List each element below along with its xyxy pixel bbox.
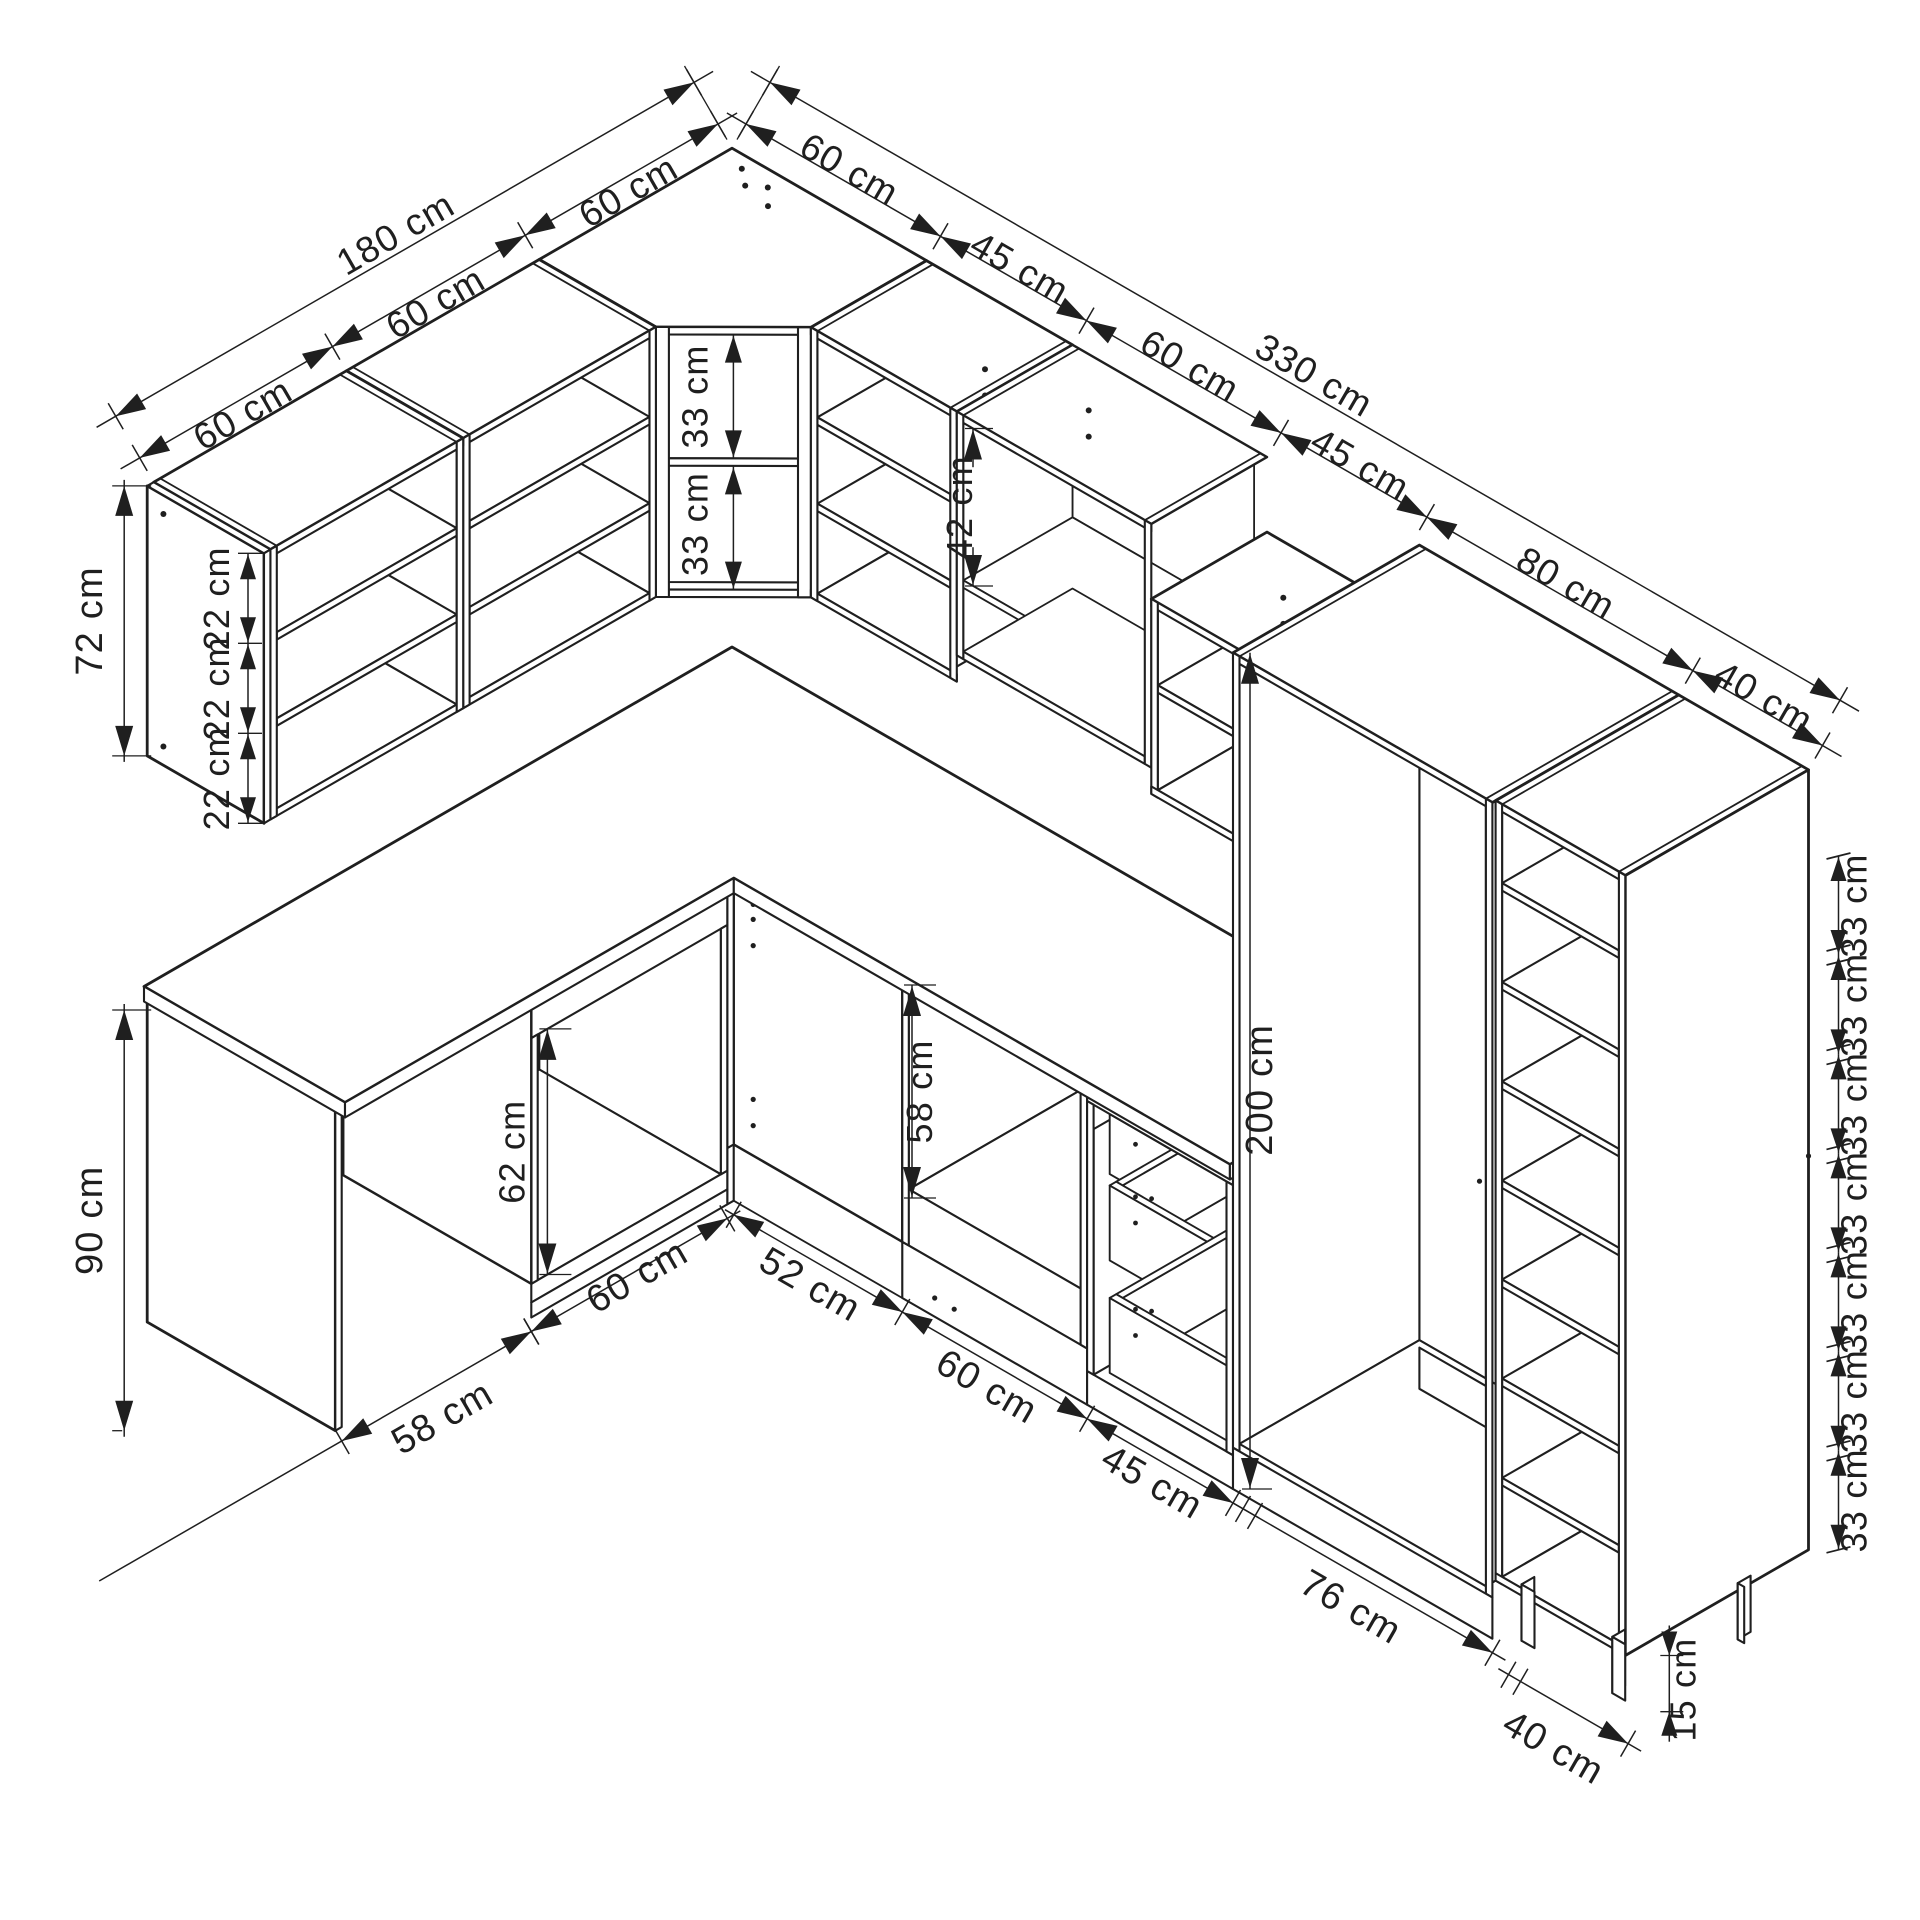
- svg-text:33 cm: 33 cm: [1834, 1052, 1875, 1156]
- svg-text:90 cm: 90 cm: [69, 1166, 111, 1275]
- svg-text:58 cm: 58 cm: [899, 1039, 940, 1143]
- svg-text:33 cm: 33 cm: [1834, 1250, 1875, 1354]
- svg-text:33 cm: 33 cm: [1834, 853, 1875, 957]
- svg-text:22 cm: 22 cm: [196, 636, 237, 740]
- svg-text:33 cm: 33 cm: [1834, 1349, 1875, 1453]
- svg-text:62 cm: 62 cm: [491, 1100, 532, 1204]
- svg-text:33 cm: 33 cm: [1834, 1151, 1875, 1255]
- svg-text:33 cm: 33 cm: [1834, 1448, 1875, 1552]
- svg-text:33 cm: 33 cm: [674, 344, 715, 448]
- svg-text:22 cm: 22 cm: [196, 726, 237, 830]
- svg-text:33 cm: 33 cm: [674, 472, 715, 576]
- svg-text:22 cm: 22 cm: [196, 546, 237, 650]
- svg-text:15 cm: 15 cm: [1662, 1638, 1703, 1742]
- svg-text:200 cm: 200 cm: [1239, 1024, 1281, 1156]
- svg-text:42 cm: 42 cm: [939, 455, 980, 559]
- svg-text:72 cm: 72 cm: [69, 566, 111, 675]
- svg-text:33 cm: 33 cm: [1834, 953, 1875, 1057]
